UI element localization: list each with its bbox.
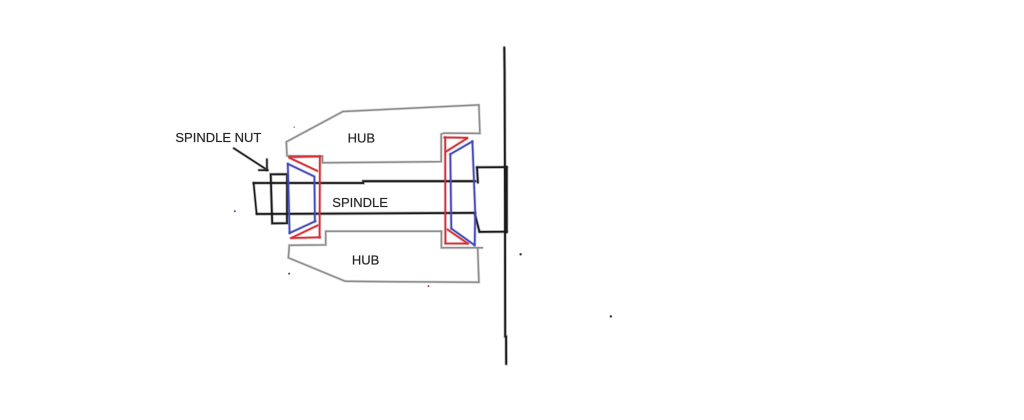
svg-text:HUB: HUB [348,130,375,145]
svg-text:SPINDLE: SPINDLE [332,195,388,210]
svg-text:SPINDLE NUT: SPINDLE NUT [175,130,261,145]
svg-text:HUB: HUB [352,253,379,268]
